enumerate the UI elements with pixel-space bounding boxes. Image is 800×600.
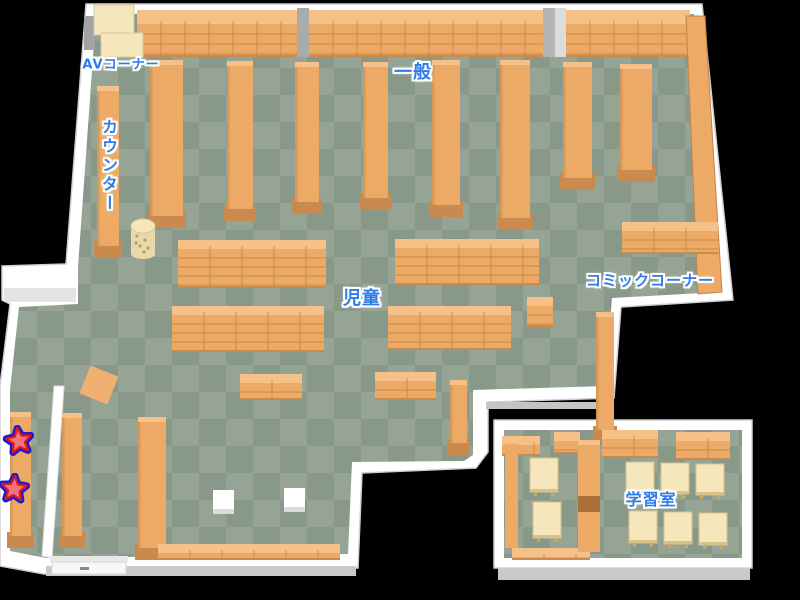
entrance-door bbox=[50, 556, 128, 574]
bookshelf bbox=[497, 60, 533, 230]
bookshelf bbox=[617, 64, 655, 182]
wall-bookshelf bbox=[137, 10, 299, 57]
wall-shadow bbox=[486, 402, 612, 409]
bookshelf bbox=[429, 60, 463, 217]
study-desk bbox=[530, 458, 558, 496]
low-bookshelf bbox=[240, 374, 302, 400]
study-wall-shelf bbox=[505, 440, 518, 548]
pillar bbox=[213, 490, 234, 514]
star-icon[interactable] bbox=[1, 423, 37, 459]
study-shelf bbox=[602, 430, 658, 458]
study-desk bbox=[696, 464, 724, 499]
label-children: 児童 bbox=[343, 284, 381, 310]
star-icon[interactable] bbox=[0, 472, 31, 506]
pillar bbox=[297, 8, 309, 57]
bookshelf bbox=[135, 417, 169, 560]
study-desk bbox=[533, 502, 561, 542]
bookshelf bbox=[147, 60, 186, 228]
pillar bbox=[284, 488, 305, 512]
av-corner-cabinet bbox=[84, 16, 95, 50]
low-bookshelf bbox=[395, 239, 539, 285]
study-desk bbox=[699, 513, 727, 549]
label-counter: カウンター bbox=[96, 119, 120, 214]
study-desk bbox=[629, 511, 657, 547]
low-bookshelf bbox=[172, 306, 324, 352]
low-bookshelf bbox=[527, 297, 553, 327]
entrance-alcove bbox=[4, 288, 76, 302]
low-bookshelf bbox=[388, 306, 511, 350]
low-bookshelf bbox=[178, 240, 326, 288]
bookshelf bbox=[360, 62, 391, 210]
bookshelf bbox=[224, 61, 256, 221]
label-comic-corner: コミックコーナー bbox=[586, 270, 714, 291]
label-general: 一般 bbox=[394, 58, 432, 84]
comic-corner-shelf bbox=[622, 222, 718, 254]
low-bookshelf bbox=[375, 372, 436, 400]
bookshelf bbox=[292, 62, 322, 214]
study-shelf bbox=[676, 432, 730, 460]
study-desk bbox=[664, 512, 692, 548]
pillar bbox=[555, 8, 566, 57]
bookshelf bbox=[447, 380, 470, 455]
map-canvas bbox=[0, 0, 800, 600]
low-bookshelf bbox=[158, 544, 340, 560]
library-floor-map: AVコーナー 一般 カウンター 児童 コミックコーナー 学習室 bbox=[0, 0, 800, 600]
round-basket bbox=[131, 219, 155, 259]
av-corner-cabinet bbox=[94, 5, 134, 35]
pillar bbox=[543, 8, 555, 57]
wall-bookshelf bbox=[309, 10, 543, 57]
bookshelf bbox=[59, 413, 85, 548]
bookshelf bbox=[560, 62, 595, 190]
label-study-room: 学習室 bbox=[625, 486, 676, 510]
study-divider-shelf bbox=[578, 440, 600, 552]
wall-bookshelf bbox=[566, 10, 690, 57]
study-shelf bbox=[554, 432, 580, 454]
comic-wall-shelf bbox=[593, 312, 617, 442]
label-av-corner: AVコーナー bbox=[82, 54, 159, 73]
